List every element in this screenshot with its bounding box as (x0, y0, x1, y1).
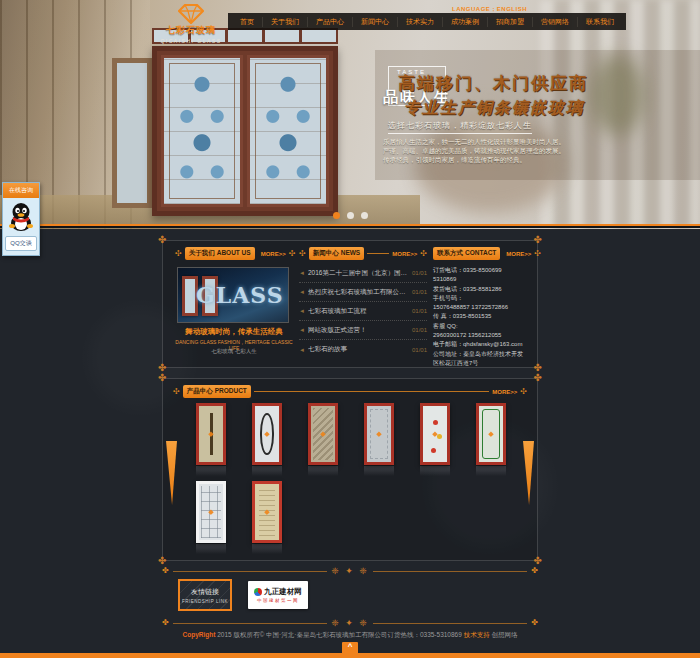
cross-ornament-icon: ✤ (162, 567, 169, 575)
brand-watermark-icon: ◆ (264, 508, 269, 516)
qq-widget-title: 在线咨询 (3, 183, 39, 198)
news-section: ✣ 新闻中心NEWS MORE>> ✣ ◄2016第二十三届中国（北京）国际..… (299, 241, 427, 367)
inlaid-glass-door-3[interactable]: ◆ (308, 403, 338, 476)
nav-item-6[interactable]: 招商加盟 (488, 17, 533, 27)
product-section-title: 产品中心PRODUCT (183, 385, 251, 398)
brand-watermark-icon: ◆ (488, 430, 493, 438)
nav-item-4[interactable]: 技术实力 (398, 17, 443, 27)
stained-glass-panel-left (161, 55, 243, 207)
side-glass-door (112, 58, 152, 208)
banner-headline-1: 高端移门、木门供应商 (398, 72, 588, 95)
product-reflection (196, 544, 226, 554)
banner-desc-3: 传承经典，引领时尚家居，缔造流传百年的经典。 (383, 156, 683, 165)
stained-glass-doors-photo (152, 46, 338, 216)
flower-ornament-icon: ✣ (289, 250, 296, 258)
news-item[interactable]: ◄七彩石玻璃加工流程01/01 (299, 302, 427, 321)
cross-ornament-icon: ✤ (531, 619, 538, 627)
contact-line: 传 真：0335-8501535 (433, 312, 531, 321)
flower-ornament-icon: ✣ (520, 388, 527, 396)
product-frame: ◆ (252, 403, 282, 465)
flower-ornament-icon: ✣ (173, 388, 180, 396)
nav-item-8[interactable]: 联系我们 (578, 17, 622, 27)
tech-support-label[interactable]: 技术支持 (464, 631, 490, 638)
banner-headline-2: 专业生产铜条镶嵌玻璃 (404, 98, 584, 119)
news-item[interactable]: ◄七彩石的故事01/01 (299, 340, 427, 359)
flower-ornament-icon: ✣ (175, 250, 182, 258)
news-date: 01/01 (412, 289, 427, 295)
contact-line: 客服 QQ: (433, 322, 531, 331)
corner-ornament-icon: ✤ (534, 235, 542, 245)
qq-widget: 在线咨询 QQ交谈 (2, 182, 40, 256)
contact-line: 2960300172 1356212055 (433, 331, 531, 340)
news-date: 01/01 (412, 308, 427, 314)
product-reflection (364, 466, 394, 476)
about-feature-image[interactable]: GLASS (177, 267, 289, 323)
product-reflection (196, 466, 226, 476)
product-frame: ◆ (252, 481, 282, 543)
cross-ornament-icon: ✤ (162, 619, 169, 627)
nav-item-1[interactable]: 关于我们 (263, 17, 308, 27)
about-caption-cn: 舞动玻璃时尚，传承生活经典 (175, 327, 293, 337)
nav-item-5[interactable]: 成功案例 (443, 17, 488, 27)
inlaid-glass-door-1[interactable]: ◆ (196, 403, 226, 476)
contact-section: 联系方式CONTACT MORE>> ✣ 订货电话：0335-850069953… (433, 241, 531, 367)
partner-link-jiuzheng[interactable]: 九正建材网 中国建材第一网 (248, 581, 308, 609)
carousel-next-arrow[interactable] (523, 441, 534, 505)
info-panel: ✤ ✤ ✤ ✤ ✣ 关于我们ABOUT US MORE>> ✣ GLASS 舞动… (162, 240, 538, 368)
about-image-word: GLASS (196, 282, 284, 308)
news-item[interactable]: ◄2016第二十三届中国（北京）国际...01/01 (299, 264, 427, 283)
copyright-text: 2015 版权所有© 中国·河北·秦皇岛七彩石玻璃加工有限公司订货热线：0335… (215, 631, 463, 638)
banner-subline: 选择七彩石玻璃，精彩绽放七彩人生 (388, 120, 532, 134)
contact-line: 15076488857 13722572866 (433, 303, 531, 312)
cross-ornament-icon: ✤ (531, 567, 538, 575)
news-title: 七彩石的故事 (308, 345, 409, 354)
brand-watermark-icon: ◆ (320, 430, 325, 438)
corner-ornament-icon: ✤ (158, 235, 166, 245)
product-frame: ◆ (308, 403, 338, 465)
product-reflection (252, 544, 282, 554)
logo[interactable]: 七彩石玻璃 QICAISHI GLASS (148, 4, 234, 44)
contact-line: 发货电话：0335-8581286 (433, 285, 531, 294)
product-frame: ◆ (420, 403, 450, 465)
divider-motif-icon: ❈ ✦ ❈ (331, 566, 369, 576)
qq-chat-button[interactable]: QQ交谈 (5, 236, 36, 251)
news-more-link[interactable]: MORE>> (392, 251, 417, 257)
news-title: 2016第二十三届中国（北京）国际... (308, 269, 409, 278)
nav-item-3[interactable]: 新闻中心 (353, 17, 398, 27)
about-caption-slogan: 七彩玻璃 七彩人生 (175, 348, 293, 355)
corner-ornament-icon: ✤ (534, 373, 542, 383)
banner-desc-1: 乐居怡人生活之家，独一无二的人性化设计彰显唯美时尚人居。 (383, 138, 683, 147)
news-arrow-icon: ◄ (299, 289, 305, 295)
news-list: ◄2016第二十三届中国（北京）国际...01/01◄热烈庆祝七彩石玻璃加工有限… (299, 264, 427, 359)
flower-ornament-icon: ✣ (299, 250, 306, 258)
product-panel: ✤ ✤ ✤ ✤ ✣ 产品中心PRODUCT MORE>> ✣ ◆◆◆◆◆◆◆◆ (162, 378, 538, 561)
copyright-prefix: CopyRight (183, 631, 216, 638)
about-section-title: 关于我们ABOUT US (185, 247, 255, 260)
contact-more-link[interactable]: MORE>> (506, 251, 531, 257)
news-title: 热烈庆祝七彩石玻璃加工有限公司网... (308, 288, 409, 297)
brand-watermark-icon: ◆ (264, 430, 269, 438)
brand-watermark-icon: ◆ (376, 430, 381, 438)
news-arrow-icon: ◄ (299, 270, 305, 276)
ornamental-divider: ✤ ❈ ✦ ❈ ✤ (162, 617, 538, 629)
inlaid-glass-door-8[interactable]: ◆ (252, 481, 282, 554)
contact-line: 电子邮箱：qhdsfansky@163.com (433, 340, 531, 349)
banner-dot-2[interactable] (361, 212, 368, 219)
banner-dot-0[interactable] (333, 212, 340, 219)
product-frame: ◆ (364, 403, 394, 465)
banner-pagination (0, 212, 700, 219)
inlaid-glass-door-5[interactable]: ◆ (420, 403, 450, 476)
product-more-link[interactable]: MORE>> (492, 389, 517, 395)
news-item[interactable]: ◄网站改版正式运营！01/01 (299, 321, 427, 340)
contact-details: 订货电话：0335-85006995310869发货电话：0335-858128… (433, 266, 531, 368)
product-reflection (252, 466, 282, 476)
news-date: 01/01 (412, 347, 427, 353)
friendship-label: 友情链接 FRIENDSHIP LINK (178, 579, 232, 611)
contact-line: 订货电话：0335-8500699 (433, 266, 531, 275)
contact-line: 手机号码： (433, 294, 531, 303)
inlaid-glass-door-7[interactable]: ◆ (196, 481, 226, 554)
friendship-links: 友情链接 FRIENDSHIP LINK 九正建材网 中国建材第一网 (162, 579, 538, 615)
divider-motif-icon: ❈ ✦ ❈ (331, 618, 369, 628)
product-motif-roses (433, 420, 438, 425)
brand-watermark-icon: ◆ (208, 430, 213, 438)
hero-banner: 七彩石玻璃 QICAISHI GLASS LANGUAGE：ENGLISH 首页… (0, 0, 700, 229)
nav-item-7[interactable]: 营销网络 (533, 17, 578, 27)
about-section: ✣ 关于我们ABOUT US MORE>> ✣ GLASS 舞动玻璃时尚，传承生… (175, 241, 293, 367)
product-frame: ◆ (196, 403, 226, 465)
diamond-logo-icon (178, 4, 204, 24)
news-arrow-icon: ◄ (299, 347, 305, 353)
nav-item-2[interactable]: 产品中心 (308, 17, 353, 27)
header-rule (367, 253, 389, 254)
inlaid-glass-door-2[interactable]: ◆ (252, 403, 282, 476)
brand-watermark-icon: ◆ (208, 508, 213, 516)
product-frame: ◆ (196, 481, 226, 543)
news-section-title: 新闻中心NEWS (309, 247, 365, 260)
tech-support-name[interactable]: 创想网络 (490, 631, 518, 638)
logo-en-text: QICAISHI GLASS (148, 38, 234, 44)
nav-item-0[interactable]: 首页 (232, 17, 263, 27)
brand-watermark-icon: ◆ (432, 430, 437, 438)
partner-logo-icon (254, 588, 262, 596)
product-reflection (420, 466, 450, 476)
carousel-prev-arrow[interactable] (166, 441, 177, 505)
qq-penguin-icon (3, 198, 39, 236)
news-date: 01/01 (412, 270, 427, 276)
about-more-link[interactable]: MORE>> (261, 251, 286, 257)
banner-divider-strip (0, 224, 700, 228)
news-title: 网站改版正式运营！ (308, 326, 409, 335)
corner-ornament-icon: ✤ (158, 373, 166, 383)
news-arrow-icon: ◄ (299, 327, 305, 333)
product-reflection (476, 466, 506, 476)
copyright-bar: CopyRight 2015 版权所有© 中国·河北·秦皇岛七彩石玻璃加工有限公… (0, 631, 700, 640)
flower-ornament-icon: ✣ (534, 250, 541, 258)
product-reflection (308, 466, 338, 476)
news-title: 七彩石玻璃加工流程 (308, 307, 409, 316)
ornamental-divider: ✤ ❈ ✦ ❈ ✤ (162, 565, 538, 577)
contact-line: 区松花江西道7号 (433, 359, 531, 368)
banner-desc-2: 严谨、高端、卓越的完美品质，铸就推动现代家居理念的发展。 (383, 147, 683, 156)
header-rule (254, 391, 489, 392)
main-nav: 首页关于我们产品中心新闻中心技术实力成功案例招商加盟营销网络联系我们 (228, 13, 626, 30)
contact-section-title: 联系方式CONTACT (433, 247, 500, 260)
back-to-top-button[interactable]: ^ (342, 642, 358, 653)
news-date: 01/01 (412, 327, 427, 333)
inlaid-glass-door-4[interactable]: ◆ (364, 403, 394, 476)
main-content: ✤ ✤ ✤ ✤ ✣ 关于我们ABOUT US MORE>> ✣ GLASS 舞动… (0, 229, 700, 658)
news-item[interactable]: ◄热烈庆祝七彩石玻璃加工有限公司网...01/01 (299, 283, 427, 302)
page: 七彩石玻璃 QICAISHI GLASS LANGUAGE：ENGLISH 首页… (0, 0, 700, 658)
contact-line: 5310869 (433, 275, 531, 284)
news-arrow-icon: ◄ (299, 308, 305, 314)
product-frame: ◆ (476, 403, 506, 465)
banner-dot-1[interactable] (347, 212, 354, 219)
bottom-accent-bar (0, 653, 700, 658)
inlaid-glass-door-6[interactable]: ◆ (476, 403, 506, 476)
stained-glass-panel-right (247, 55, 329, 207)
flower-ornament-icon: ✣ (420, 250, 427, 258)
contact-line: 公司地址：秦皇岛市经济技术开发 (433, 350, 531, 359)
logo-cn-text: 七彩石玻璃 (148, 24, 234, 37)
